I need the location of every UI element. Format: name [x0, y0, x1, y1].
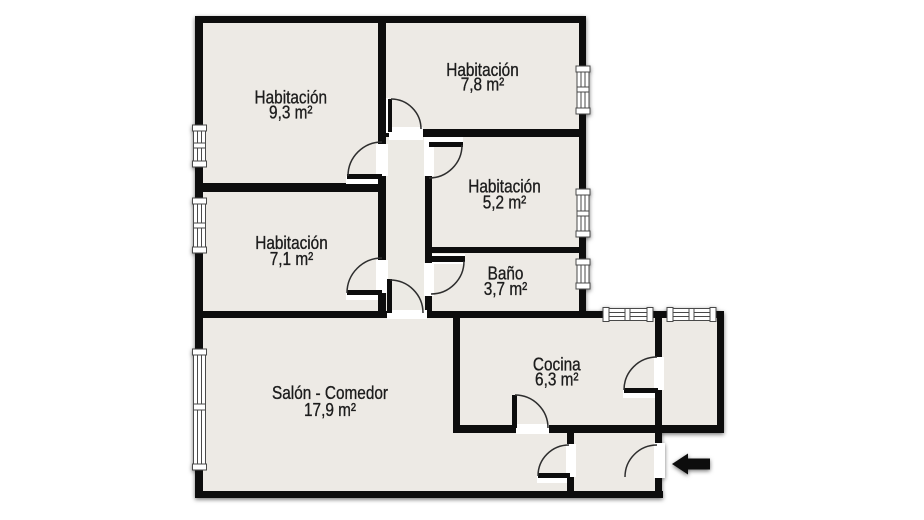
- svg-text:5,2 m²: 5,2 m²: [483, 192, 527, 213]
- svg-text:6,3 m²: 6,3 m²: [535, 369, 579, 390]
- svg-text:7,1 m²: 7,1 m²: [270, 249, 314, 270]
- svg-text:3,7 m²: 3,7 m²: [484, 279, 528, 300]
- svg-text:17,9 m²: 17,9 m²: [304, 400, 356, 421]
- svg-text:7,8 m²: 7,8 m²: [461, 74, 505, 95]
- svg-text:9,3 m²: 9,3 m²: [269, 102, 313, 123]
